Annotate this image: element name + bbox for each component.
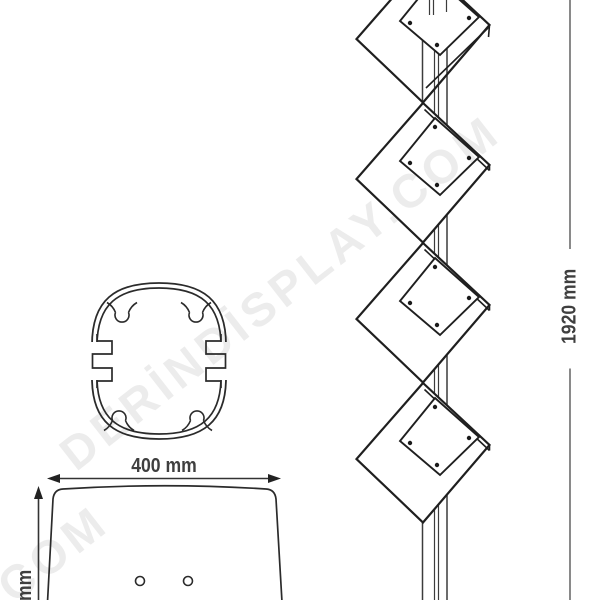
arrowhead-up	[34, 486, 43, 499]
shelf-panel-3	[357, 243, 490, 383]
base-plate-hole	[136, 577, 145, 586]
technical-drawing-page: 1920 mm 400 mm mm	[0, 0, 600, 600]
profile-left-slot-gap	[90, 342, 99, 380]
watermark-text-tile: DERİNDİSPLAY.COM	[0, 494, 118, 600]
height-dimension: 1920 mm	[557, 0, 579, 600]
display-tower-view	[357, 0, 490, 600]
height-dimension-label: 1920 mm	[557, 269, 579, 344]
base-plate-hole	[184, 577, 193, 586]
base-width-label: 400 mm	[131, 454, 197, 476]
shelf-panel-4	[357, 383, 490, 523]
arrowhead-right	[268, 474, 281, 483]
technical-drawing-canvas: 1920 mm 400 mm mm	[0, 0, 600, 600]
arrowhead-left	[47, 474, 60, 483]
